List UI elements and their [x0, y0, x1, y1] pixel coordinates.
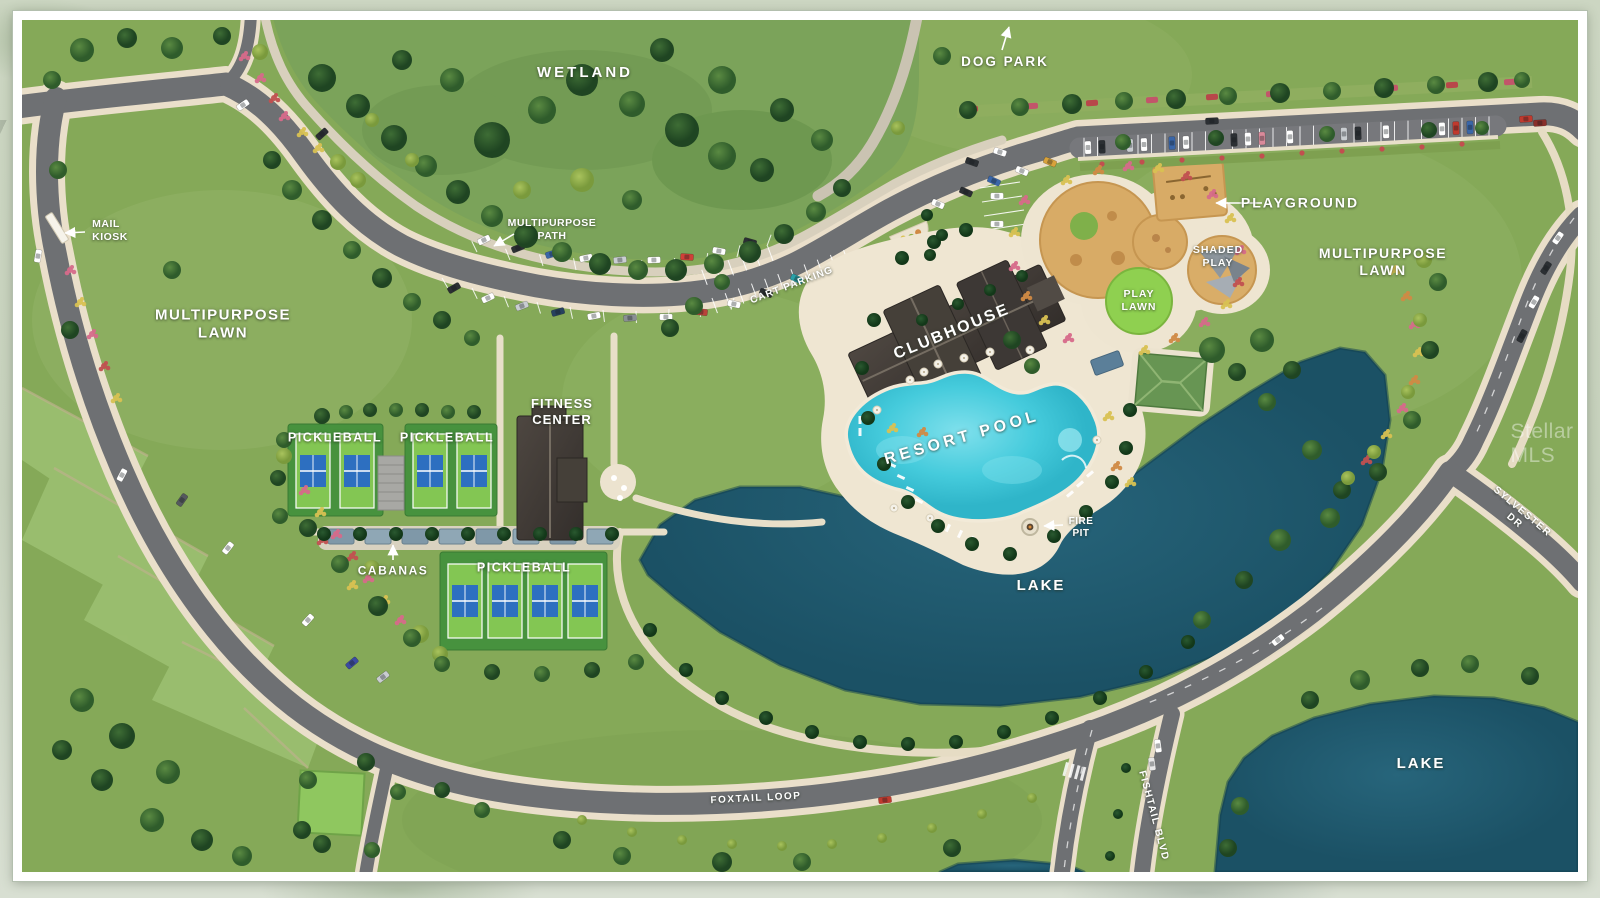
- fire-pit-arrow-icon: [1044, 525, 1063, 526]
- pavilion: [1135, 353, 1207, 411]
- map-art: [22, 20, 1578, 872]
- mail-kiosk-arrow-icon: [65, 232, 85, 233]
- play-lawn-circle: [1106, 268, 1172, 334]
- site-plan-image: WETLAND DOG PARK PLAYGROUND MULTIPURPOSE…: [0, 0, 1600, 898]
- fire-pit: [1022, 519, 1038, 535]
- bleacher: [378, 456, 404, 510]
- map-canvas: WETLAND DOG PARK PLAYGROUND MULTIPURPOSE…: [13, 11, 1587, 881]
